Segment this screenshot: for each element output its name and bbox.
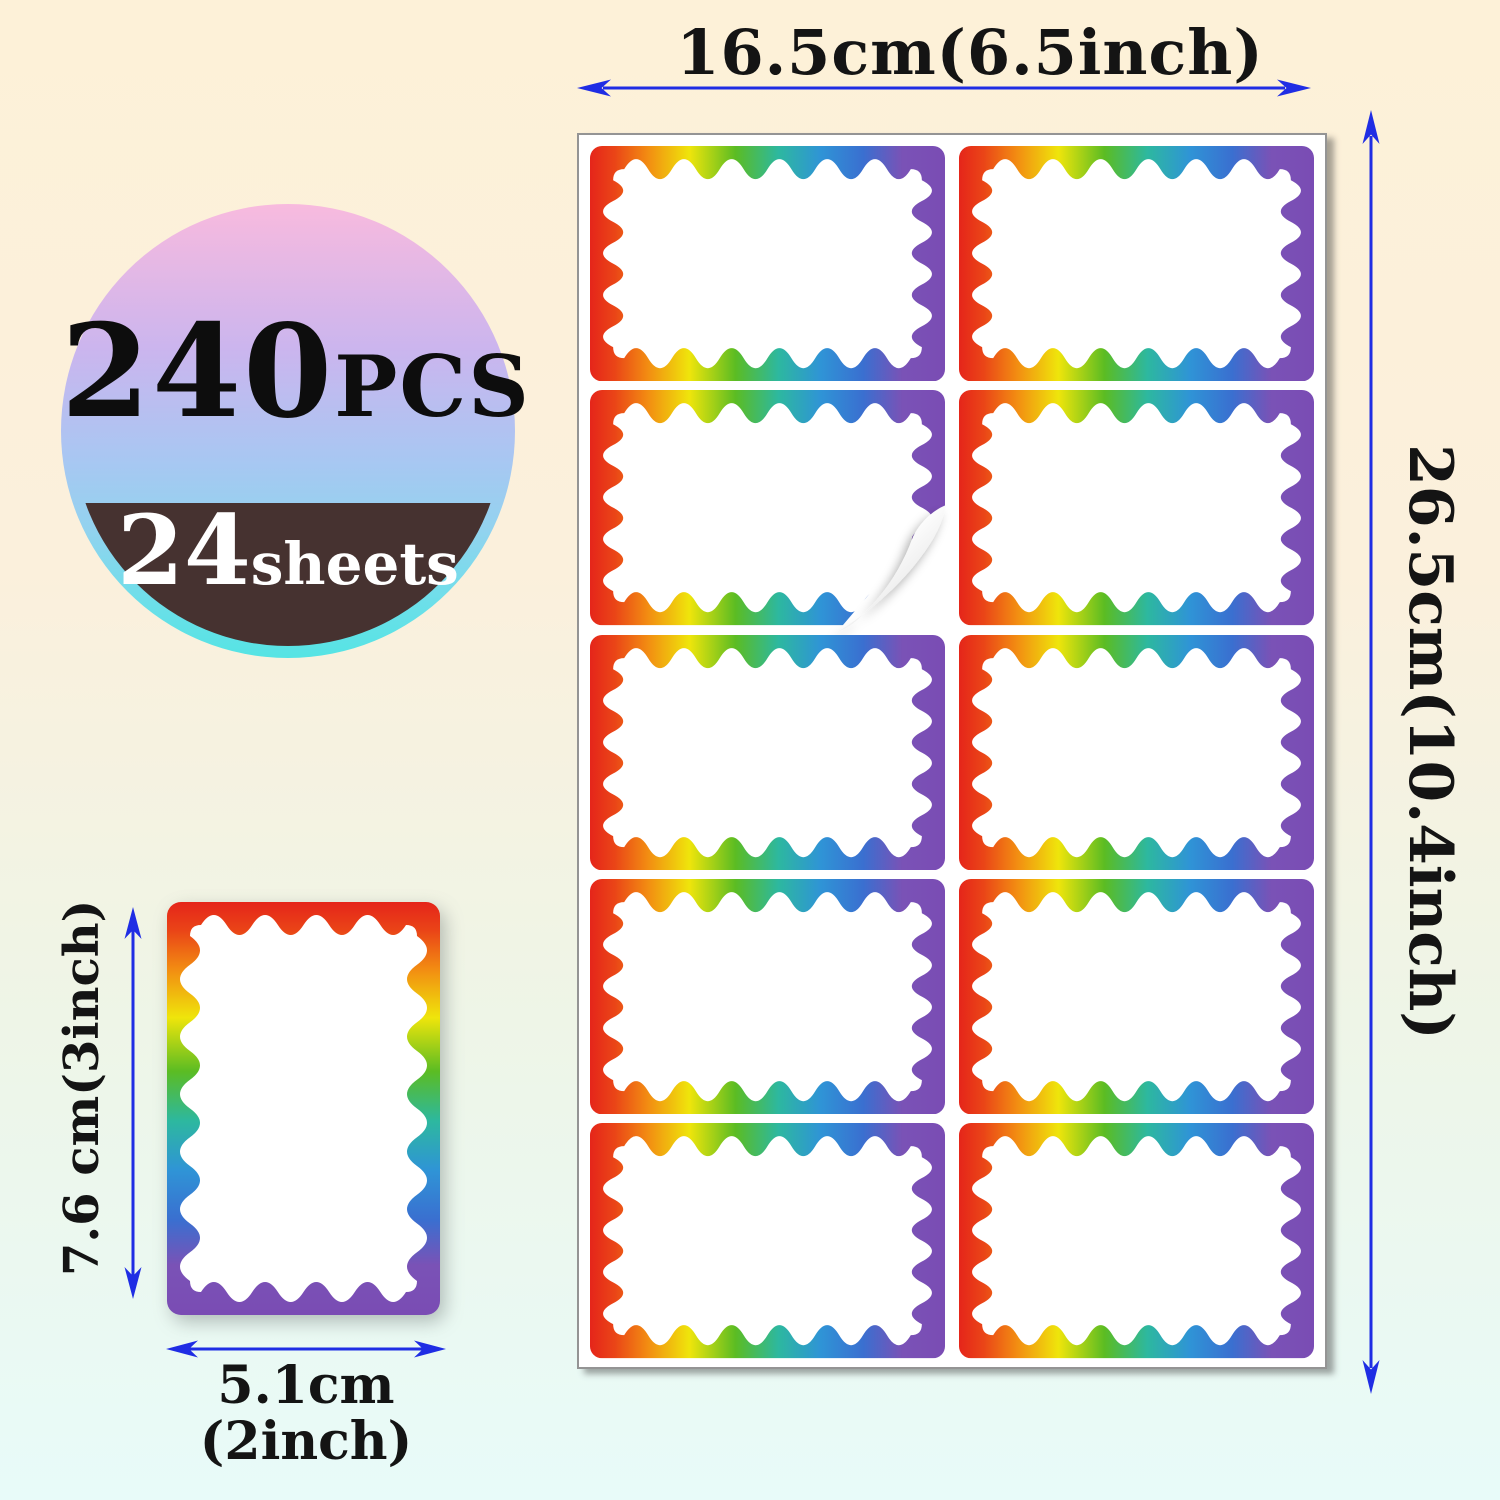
rainbow-wavy-border	[959, 146, 1314, 381]
badge-count-unit: PCS	[334, 337, 531, 436]
name-tag-label	[590, 390, 945, 625]
label-width-dimension: 5.1cm (2inch)	[156, 1358, 456, 1470]
name-tag-label	[959, 635, 1314, 870]
rainbow-wavy-border	[590, 146, 945, 381]
rainbow-wavy-border	[959, 390, 1314, 625]
product-infographic: 240PCS 24sheets 16.5cm(6.5inch) 26.5cm(1…	[0, 0, 1500, 1500]
name-tag-label	[959, 390, 1314, 625]
rainbow-wavy-border	[590, 1123, 945, 1358]
name-tag-label	[590, 146, 945, 381]
rainbow-wavy-border	[959, 879, 1314, 1114]
name-tag-label	[959, 879, 1314, 1114]
name-tag-label	[590, 1123, 945, 1358]
label-height-arrow	[122, 905, 144, 1301]
label-height-dimension: 7.6 cm(3inch)	[54, 916, 120, 1276]
badge-sheet-count: 24sheets	[61, 503, 515, 599]
name-tag-label	[590, 879, 945, 1114]
badge-sheets-number: 24	[117, 494, 251, 607]
badge-count-number: 240	[61, 297, 334, 447]
rainbow-wavy-border	[590, 879, 945, 1114]
label-width-line1: 5.1cm	[156, 1358, 456, 1414]
quantity-badge: 240PCS 24sheets	[61, 204, 515, 658]
label-width-line2: (2inch)	[156, 1414, 456, 1470]
rainbow-wavy-border	[959, 1123, 1314, 1358]
single-name-tag-label	[167, 902, 440, 1315]
rainbow-wavy-border	[959, 635, 1314, 870]
peeling-corner	[831, 494, 953, 636]
badge-piece-count: 240PCS	[61, 308, 515, 436]
sheet-height-arrow	[1360, 108, 1382, 1396]
sticker-sheet	[577, 133, 1327, 1369]
rainbow-wavy-border	[590, 635, 945, 870]
name-tag-label	[959, 146, 1314, 381]
name-tag-label	[959, 1123, 1314, 1358]
sheet-width-arrow	[575, 77, 1313, 99]
name-tag-label	[590, 635, 945, 870]
label-sheet-grid	[579, 135, 1325, 1367]
badge-sheets-unit: sheets	[251, 530, 459, 598]
sheet-height-dimension: 26.5cm(10.4inch)	[1393, 392, 1465, 1092]
